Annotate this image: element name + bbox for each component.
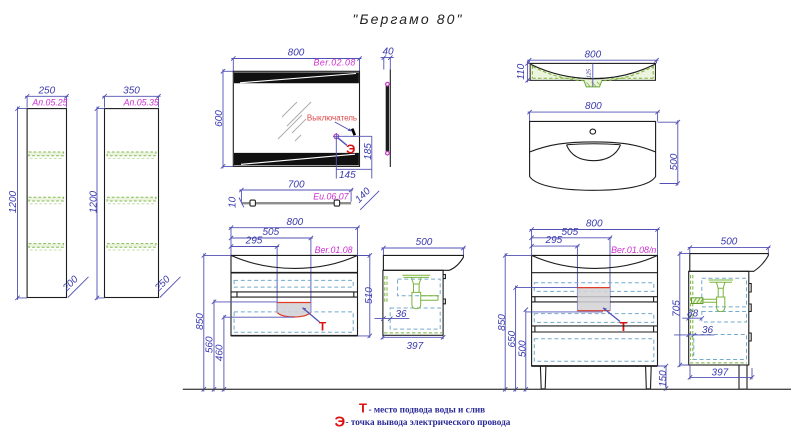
- svg-text:295: 295: [245, 236, 263, 247]
- svg-text:800: 800: [288, 48, 305, 59]
- svg-text:Э: Э: [334, 413, 345, 430]
- svg-text:- место подвода воды и слив: - место подвода воды и слив: [369, 405, 486, 415]
- svg-text:"Бергамо 80": "Бергамо 80": [352, 11, 463, 27]
- svg-text:- точка вывода электрического: - точка вывода электрического провода: [346, 417, 511, 427]
- svg-text:510: 510: [364, 287, 375, 304]
- svg-text:Ber.01.08/n: Ber.01.08/n: [611, 245, 656, 255]
- svg-text:110: 110: [516, 63, 527, 79]
- svg-text:850: 850: [497, 314, 508, 331]
- svg-text:397: 397: [406, 341, 423, 352]
- svg-text:505: 505: [262, 227, 279, 238]
- svg-text:Э: Э: [346, 141, 355, 156]
- svg-text:700: 700: [288, 179, 305, 190]
- svg-text:Ber.02.08: Ber.02.08: [313, 58, 355, 68]
- svg-text:36: 36: [395, 309, 407, 320]
- svg-text:1200: 1200: [8, 190, 19, 213]
- svg-text:Т: Т: [359, 401, 367, 416]
- svg-text:Ber.01.08: Ber.01.08: [315, 245, 353, 255]
- svg-text:1200: 1200: [88, 190, 99, 213]
- svg-text:397: 397: [712, 367, 729, 378]
- svg-text:250: 250: [37, 86, 55, 97]
- svg-text:40: 40: [382, 46, 394, 57]
- svg-text:150: 150: [658, 370, 669, 387]
- svg-text:Eu.06.07: Eu.06.07: [313, 192, 349, 202]
- svg-text:Ап.05.35: Ап.05.35: [123, 97, 159, 107]
- svg-text:Т: Т: [319, 320, 327, 334]
- svg-text:600: 600: [214, 110, 225, 127]
- svg-text:500: 500: [721, 237, 738, 248]
- svg-text:460: 460: [215, 344, 226, 361]
- svg-text:145: 145: [339, 170, 356, 181]
- svg-text:850: 850: [195, 313, 206, 330]
- svg-text:800: 800: [287, 217, 304, 228]
- svg-text:Выключатель: Выключатель: [307, 114, 357, 123]
- svg-text:705: 705: [671, 300, 682, 317]
- svg-text:Ап.05.25: Ап.05.25: [31, 97, 67, 107]
- svg-text:505: 505: [561, 227, 578, 238]
- svg-text:88: 88: [687, 309, 699, 320]
- svg-text:10: 10: [227, 196, 238, 208]
- svg-text:500: 500: [669, 153, 680, 170]
- svg-text:295: 295: [545, 235, 563, 246]
- svg-text:800: 800: [586, 218, 603, 229]
- svg-text:185: 185: [363, 143, 374, 160]
- svg-text:500: 500: [517, 340, 528, 357]
- svg-text:36: 36: [702, 325, 714, 336]
- svg-text:800: 800: [585, 101, 602, 112]
- svg-text:500: 500: [416, 237, 433, 248]
- svg-text:125: 125: [587, 68, 593, 78]
- svg-text:350: 350: [123, 86, 140, 97]
- svg-text:800: 800: [584, 49, 601, 60]
